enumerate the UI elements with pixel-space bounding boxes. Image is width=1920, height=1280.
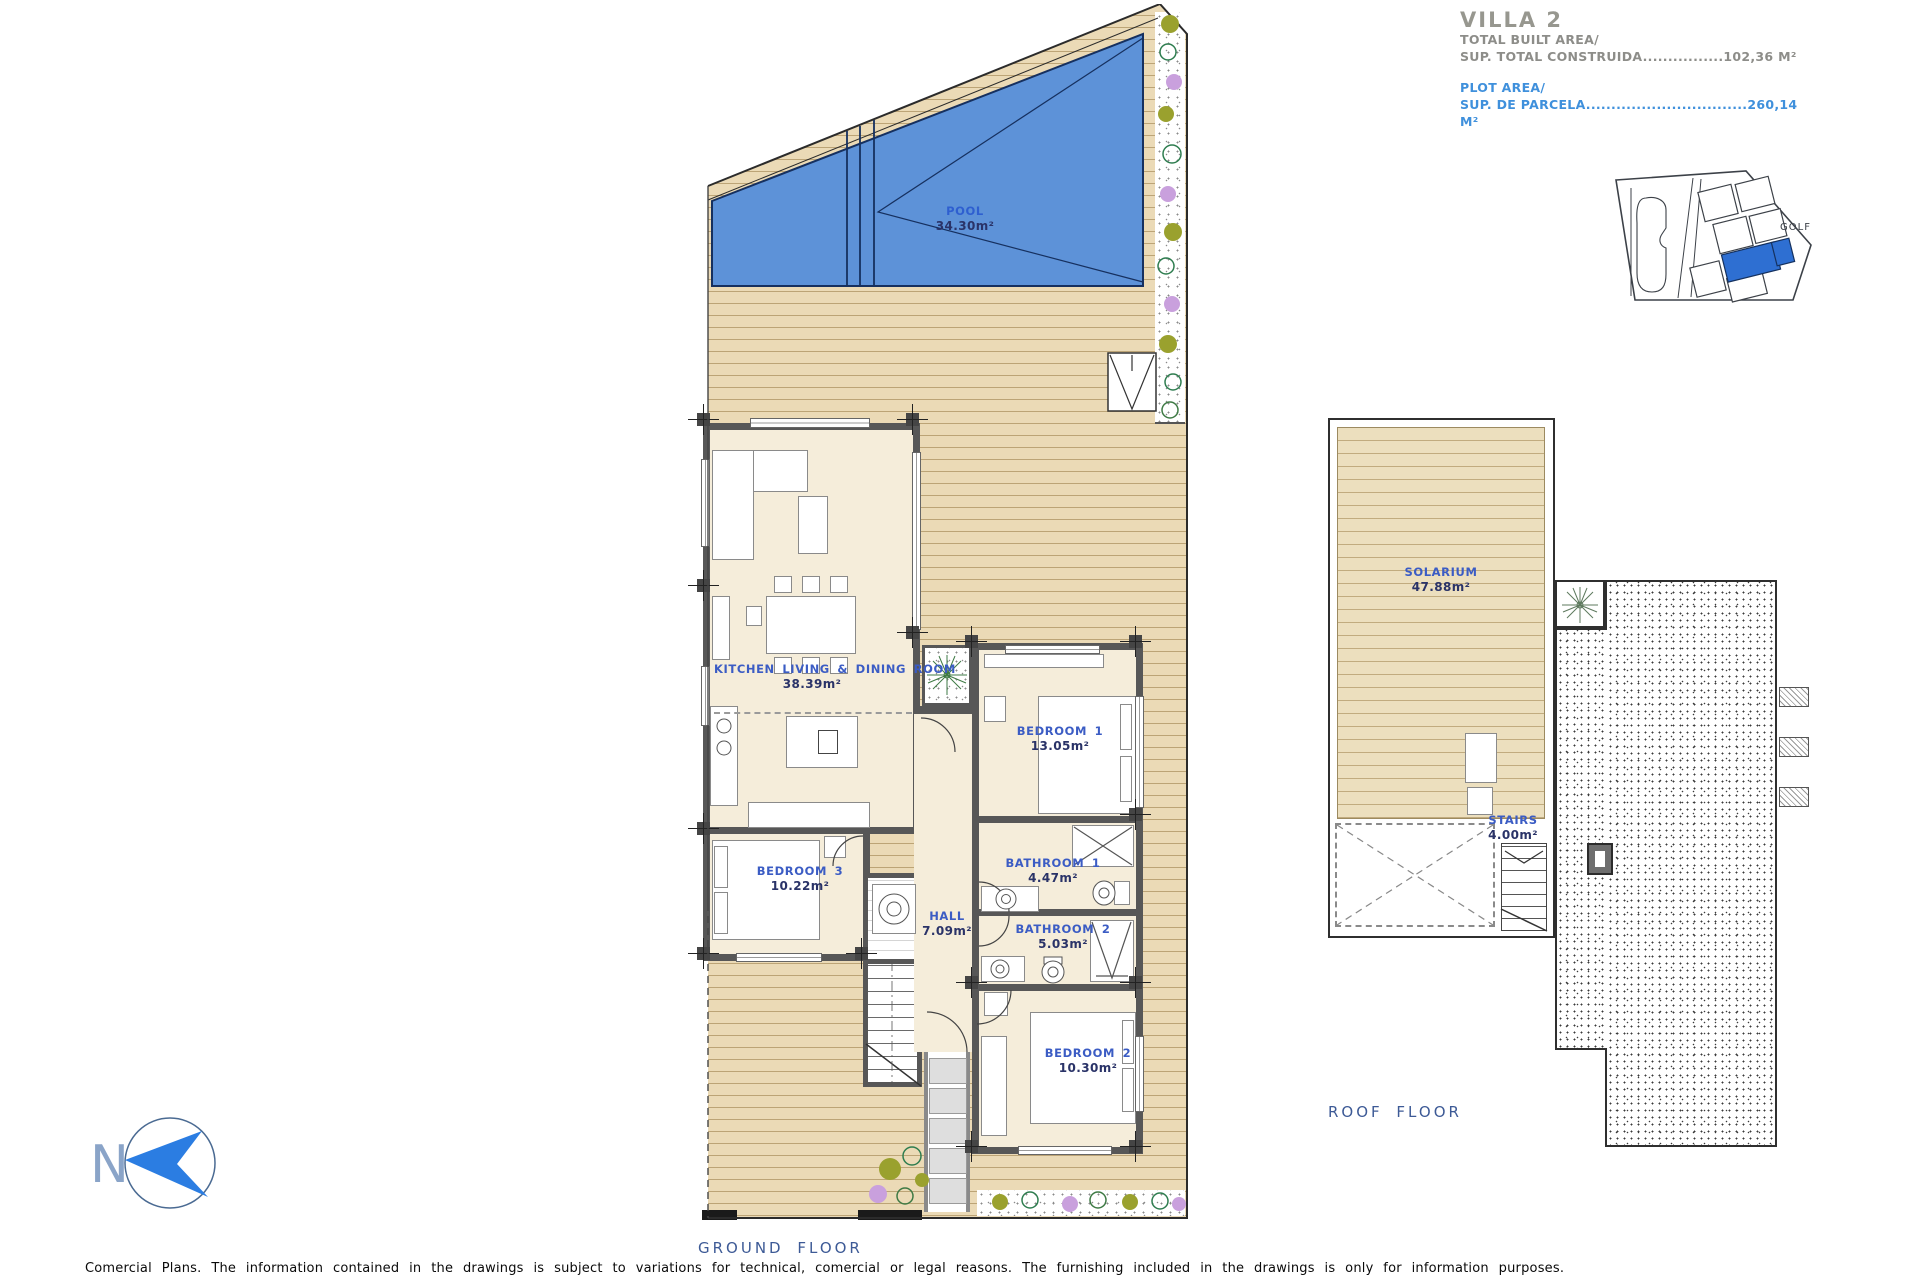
ground-floor-plan: POOL 34.30m² KITCHEN LIVING & DINING ROO… xyxy=(700,4,1192,1232)
roof-floor-plan: SOLARIUM 47.88m² STAIRS 4.00m² ROOF FLOO… xyxy=(1325,415,1840,1155)
plot-area-label: PLOT AREA/ xyxy=(1460,80,1820,97)
tree-icon xyxy=(927,655,967,695)
stair-break-line xyxy=(866,1044,921,1086)
door-arcs xyxy=(833,718,1011,1052)
roof-linework xyxy=(1325,415,1840,1155)
villa-title: VILLA 2 xyxy=(1460,8,1820,32)
bathroom2-fixtures xyxy=(991,922,1131,983)
ground-floor-linework xyxy=(700,4,1192,1232)
ground-floor-caption: GROUND FLOOR xyxy=(698,1239,863,1257)
roof-floor-caption: ROOF FLOOR xyxy=(1328,1103,1462,1121)
flower-bed-plants xyxy=(992,1192,1186,1212)
built-area-row: SUP. TOTAL CONSTRUIDA................102… xyxy=(1460,49,1820,66)
entrance-plants xyxy=(869,1147,929,1204)
north-compass: N xyxy=(88,1100,228,1230)
void-cross-lines xyxy=(1337,825,1493,925)
tree-icon xyxy=(1562,587,1598,623)
site-location-map: GOLF xyxy=(1598,168,1843,313)
site-map-drawing: GOLF xyxy=(1598,168,1843,313)
bathroom1-fixtures xyxy=(996,827,1132,909)
stair-break-line xyxy=(1501,909,1547,931)
golf-label: GOLF xyxy=(1780,222,1811,233)
floor-plan-sheet: VILLA 2 TOTAL BUILT AREA/ SUP. TOTAL CON… xyxy=(0,0,1920,1280)
north-arrow-icon xyxy=(125,1131,208,1197)
compass-drawing: N xyxy=(88,1100,228,1230)
deck-access-detail xyxy=(1108,353,1156,411)
washing-machine-drum xyxy=(879,894,909,924)
title-block: VILLA 2 TOTAL BUILT AREA/ SUP. TOTAL CON… xyxy=(1460,8,1820,130)
kitchen-hob xyxy=(717,719,731,755)
stair-arrow xyxy=(1505,851,1543,863)
built-area-label: TOTAL BUILT AREA/ xyxy=(1460,32,1820,49)
pool-shape xyxy=(712,34,1143,286)
footer-disclaimer: Comercial Plans. The information contain… xyxy=(85,1261,1785,1276)
north-letter: N xyxy=(90,1135,129,1195)
garden-plants xyxy=(1158,15,1182,418)
plot-area-row: SUP. DE PARCELA.........................… xyxy=(1460,97,1820,131)
